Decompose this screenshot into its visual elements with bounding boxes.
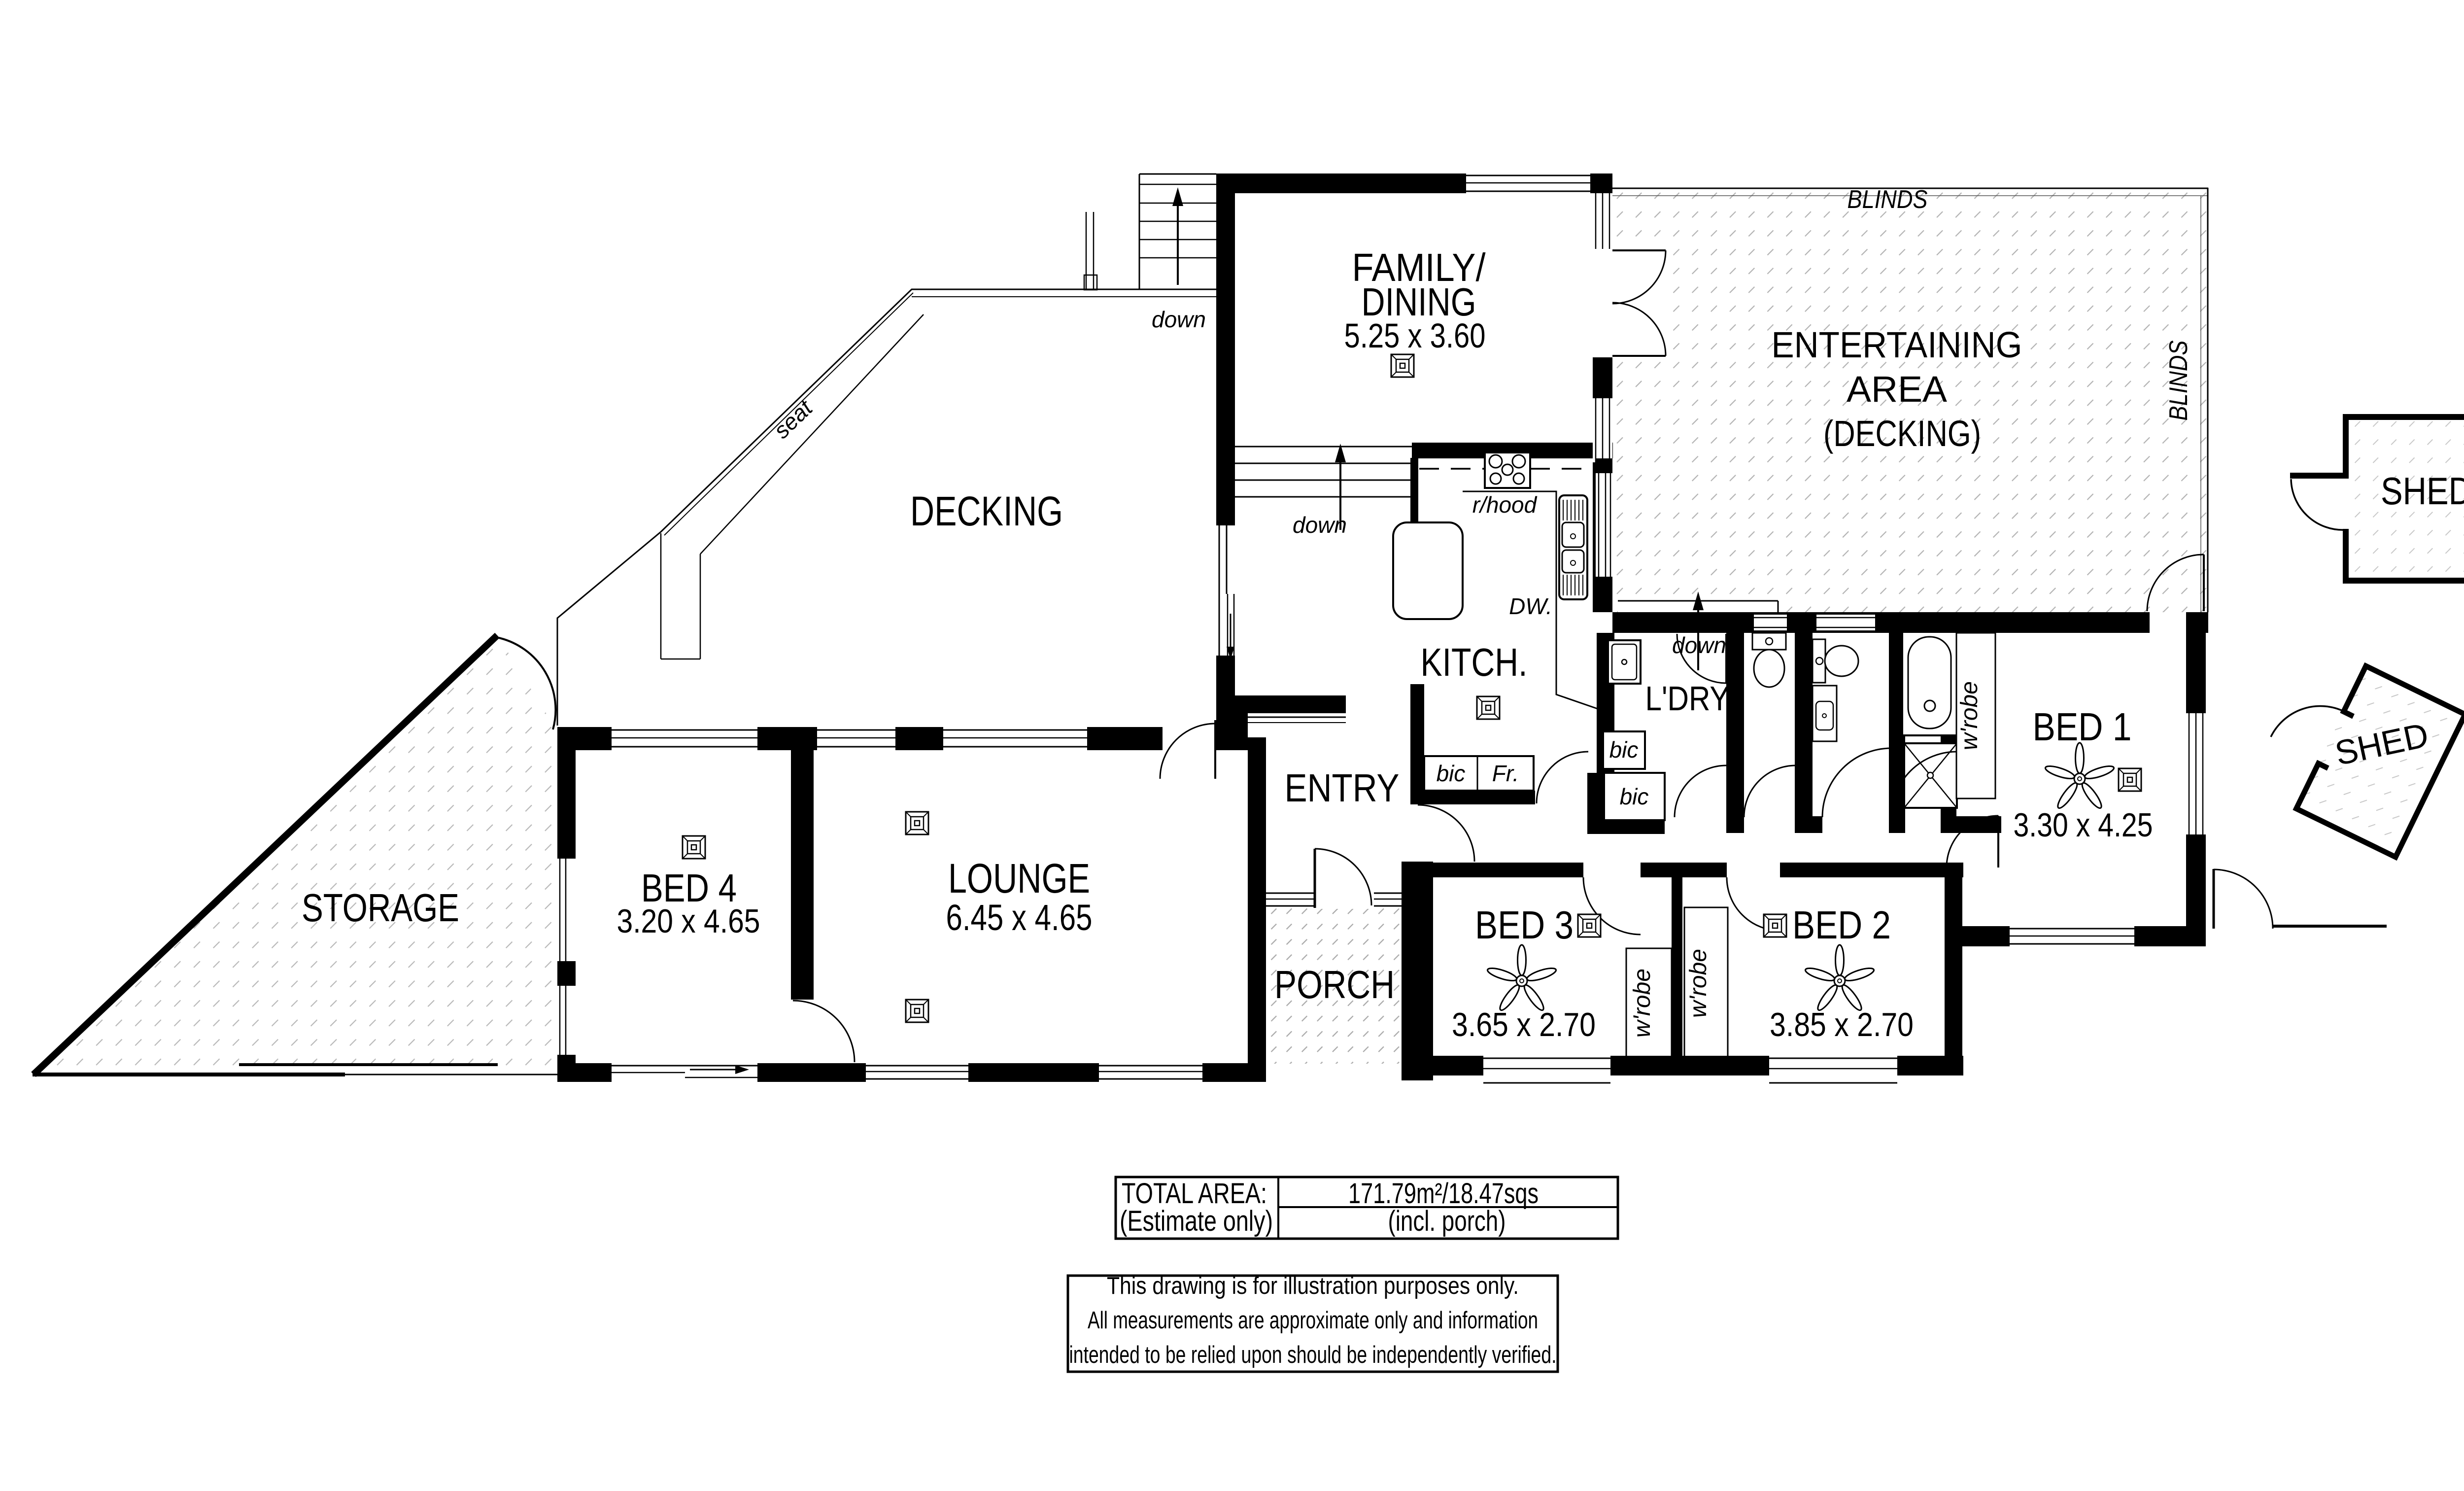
svg-text:PORCH: PORCH bbox=[1274, 963, 1395, 1006]
svg-text:STORAGE: STORAGE bbox=[302, 886, 459, 930]
svg-text:LOUNGE: LOUNGE bbox=[948, 855, 1090, 902]
svg-text:ENTRY: ENTRY bbox=[1285, 766, 1400, 810]
svg-text:DECKING: DECKING bbox=[910, 488, 1063, 534]
svg-text:3.20 x 4.65: 3.20 x 4.65 bbox=[617, 902, 760, 940]
svg-text:(incl. porch): (incl. porch) bbox=[1388, 1205, 1506, 1237]
svg-text:down: down bbox=[1672, 632, 1726, 658]
svg-text:BED 1: BED 1 bbox=[2033, 705, 2132, 749]
svg-text:bic: bic bbox=[1620, 784, 1649, 809]
svg-text:BLINDS: BLINDS bbox=[2164, 340, 2193, 420]
svg-text:BED 2: BED 2 bbox=[1792, 903, 1891, 947]
svg-text:w'robe: w'robe bbox=[1685, 949, 1711, 1018]
svg-text:down: down bbox=[1293, 512, 1347, 538]
svg-text:6.45 x 4.65: 6.45 x 4.65 bbox=[946, 897, 1093, 938]
svg-text:DW.: DW. bbox=[1509, 593, 1552, 619]
svg-text:intended to be relied upon sho: intended to be relied upon should be ind… bbox=[1069, 1342, 1557, 1368]
svg-text:r/hood: r/hood bbox=[1472, 492, 1538, 518]
svg-text:BLINDS: BLINDS bbox=[1848, 185, 1928, 214]
svg-text:(DECKING): (DECKING) bbox=[1823, 413, 1981, 454]
svg-text:5.25 x 3.60: 5.25 x 3.60 bbox=[1344, 316, 1486, 355]
svg-text:w'robe: w'robe bbox=[1956, 681, 1983, 750]
svg-text:3.65 x 2.70: 3.65 x 2.70 bbox=[1452, 1006, 1596, 1043]
svg-text:AREA: AREA bbox=[1847, 369, 1948, 410]
svg-text:KITCH.: KITCH. bbox=[1421, 640, 1528, 684]
svg-text:L'DRY: L'DRY bbox=[1645, 679, 1730, 718]
svg-text:BED 3: BED 3 bbox=[1475, 903, 1574, 947]
svg-text:(Estimate only): (Estimate only) bbox=[1120, 1205, 1273, 1237]
svg-text:All measurements are approxima: All measurements are approximate only an… bbox=[1088, 1307, 1538, 1334]
svg-text:SHED: SHED bbox=[2381, 469, 2464, 513]
svg-text:Fr.: Fr. bbox=[1492, 761, 1519, 786]
svg-text:bic: bic bbox=[1609, 737, 1639, 763]
svg-text:down: down bbox=[1152, 307, 1206, 332]
svg-text:bic: bic bbox=[1437, 761, 1466, 786]
svg-text:w'robe: w'robe bbox=[1629, 969, 1655, 1038]
svg-text:3.30 x 4.25: 3.30 x 4.25 bbox=[2014, 806, 2153, 844]
svg-text:This drawing is for illustrati: This drawing is for illustration purpose… bbox=[1107, 1273, 1519, 1299]
svg-text:ENTERTAINING: ENTERTAINING bbox=[1772, 324, 2022, 365]
svg-text:3.85 x 2.70: 3.85 x 2.70 bbox=[1770, 1006, 1914, 1043]
